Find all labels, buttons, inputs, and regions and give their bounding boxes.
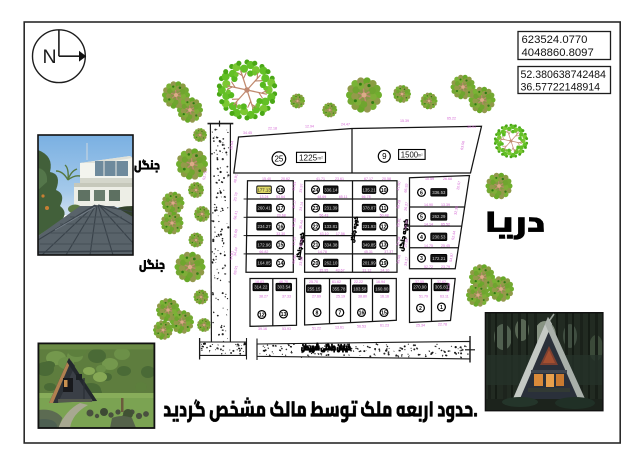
svg-text:56.53: 56.53 xyxy=(357,325,366,329)
svg-text:18.83: 18.83 xyxy=(255,280,264,284)
svg-text:m²: m² xyxy=(418,153,423,158)
svg-text:23.61: 23.61 xyxy=(335,177,344,181)
svg-text:13.24: 13.24 xyxy=(260,195,269,199)
svg-text:37.37: 37.37 xyxy=(384,250,393,254)
svg-text:37.62: 37.62 xyxy=(437,280,446,284)
svg-text:17: 17 xyxy=(278,206,284,212)
svg-text:67.17: 67.17 xyxy=(364,177,373,181)
svg-text:20.62: 20.62 xyxy=(281,177,290,181)
svg-text:65.52: 65.52 xyxy=(441,222,450,226)
svg-text:12.94: 12.94 xyxy=(305,124,314,128)
svg-text:m²: m² xyxy=(318,156,324,161)
svg-text:4: 4 xyxy=(420,235,423,241)
svg-text:53.64: 53.64 xyxy=(276,195,285,199)
svg-text:65.22: 65.22 xyxy=(447,117,456,121)
svg-text:255.15: 255.15 xyxy=(307,286,321,291)
svg-text:10.59: 10.59 xyxy=(425,177,434,181)
svg-text:14.90: 14.90 xyxy=(424,203,433,207)
svg-text:11: 11 xyxy=(381,206,387,212)
svg-text:37.33: 37.33 xyxy=(282,295,291,299)
svg-text:23.79: 23.79 xyxy=(441,265,450,269)
svg-text:33.30: 33.30 xyxy=(276,232,285,236)
svg-text:135.21: 135.21 xyxy=(363,187,377,192)
svg-text:334.38: 334.38 xyxy=(324,242,338,247)
svg-text:8: 8 xyxy=(316,310,319,316)
svg-text:201.99: 201.99 xyxy=(363,261,377,266)
svg-text:262.10: 262.10 xyxy=(324,261,338,266)
svg-text:20.68: 20.68 xyxy=(277,214,286,218)
svg-text:623524.0770: 623524.0770 xyxy=(522,34,588,46)
svg-text:164.85: 164.85 xyxy=(258,261,272,266)
svg-text:12: 12 xyxy=(381,224,387,230)
svg-text:9: 9 xyxy=(382,152,387,161)
svg-text:378.87: 378.87 xyxy=(363,206,377,211)
svg-text:25.34: 25.34 xyxy=(416,324,425,328)
svg-text:56.43: 56.43 xyxy=(319,214,328,218)
svg-text:46.70: 46.70 xyxy=(279,280,288,284)
svg-text:65.11: 65.11 xyxy=(339,195,348,199)
svg-text:51.22: 51.22 xyxy=(312,327,321,331)
svg-text:221.93: 221.93 xyxy=(363,224,377,229)
svg-text:14.14: 14.14 xyxy=(424,222,433,226)
svg-text:22: 22 xyxy=(313,224,319,230)
svg-text:23: 23 xyxy=(313,206,319,212)
svg-text:7: 7 xyxy=(338,310,341,316)
svg-text:5: 5 xyxy=(420,215,423,221)
svg-text:25.45: 25.45 xyxy=(441,244,450,248)
svg-text:15: 15 xyxy=(278,243,284,249)
svg-text:183.58: 183.58 xyxy=(353,286,367,291)
svg-text:2: 2 xyxy=(419,306,422,312)
svg-text:270.90: 270.90 xyxy=(413,285,427,290)
svg-text:45.31: 45.31 xyxy=(364,250,373,254)
svg-text:27.69: 27.69 xyxy=(312,295,321,299)
svg-text:39.91: 39.91 xyxy=(467,125,476,129)
svg-text:336.14: 336.14 xyxy=(324,187,338,192)
svg-text:262.29: 262.29 xyxy=(432,214,446,219)
svg-text:14: 14 xyxy=(278,261,284,267)
svg-text:172.21: 172.21 xyxy=(432,256,446,261)
svg-text:12: 12 xyxy=(259,312,265,318)
svg-text:43.67: 43.67 xyxy=(336,268,345,272)
svg-text:35.95: 35.95 xyxy=(319,268,328,272)
svg-text:133.81: 133.81 xyxy=(324,224,338,229)
svg-text:15: 15 xyxy=(381,310,387,316)
svg-text:16: 16 xyxy=(278,224,284,230)
svg-text:24.47: 24.47 xyxy=(341,122,350,126)
svg-text:61.23: 61.23 xyxy=(380,324,389,328)
svg-text:10: 10 xyxy=(381,188,387,194)
svg-text:63.11: 63.11 xyxy=(440,295,449,299)
svg-text:19: 19 xyxy=(381,261,387,267)
svg-text:14.75: 14.75 xyxy=(424,244,433,248)
svg-text:52.72: 52.72 xyxy=(424,265,433,269)
svg-text:234.27: 234.27 xyxy=(258,224,272,229)
svg-text:16.16: 16.16 xyxy=(380,295,389,299)
svg-text:38.27: 38.27 xyxy=(259,295,268,299)
svg-text:13: 13 xyxy=(281,312,287,318)
svg-text:25: 25 xyxy=(274,155,283,164)
svg-text:66.82: 66.82 xyxy=(259,250,268,254)
svg-text:66.78: 66.78 xyxy=(362,195,371,199)
svg-text:1500: 1500 xyxy=(401,151,419,160)
svg-text:230.53: 230.53 xyxy=(432,235,446,240)
svg-text:3: 3 xyxy=(420,256,423,262)
svg-text:36.57722148914: 36.57722148914 xyxy=(521,81,601,93)
svg-text:231.39: 231.39 xyxy=(324,206,338,211)
svg-text:31.12: 31.12 xyxy=(362,268,371,272)
svg-text:6: 6 xyxy=(420,190,423,196)
svg-text:22.78: 22.78 xyxy=(438,323,447,327)
svg-text:18: 18 xyxy=(278,188,284,194)
svg-text:50.48: 50.48 xyxy=(380,214,389,218)
svg-text:13: 13 xyxy=(381,243,387,249)
svg-text:N: N xyxy=(42,46,56,68)
svg-text:26.68: 26.68 xyxy=(443,177,452,181)
svg-text:172.96: 172.96 xyxy=(258,242,272,247)
svg-text:25.70: 25.70 xyxy=(309,280,318,284)
svg-text:41.71: 41.71 xyxy=(316,177,325,181)
svg-text:22.22: 22.22 xyxy=(354,280,363,284)
svg-text:160.80: 160.80 xyxy=(375,286,389,291)
svg-text:4048860.8097: 4048860.8097 xyxy=(522,47,594,59)
svg-text:15.39: 15.39 xyxy=(400,119,409,123)
svg-text:22.18: 22.18 xyxy=(268,126,277,130)
svg-text:14.78: 14.78 xyxy=(318,250,327,254)
svg-text:13.39: 13.39 xyxy=(441,203,450,207)
svg-text:39.16: 39.16 xyxy=(258,327,267,331)
svg-text:1225: 1225 xyxy=(299,153,318,162)
svg-text:24.10: 24.10 xyxy=(380,268,389,272)
svg-text:15.40: 15.40 xyxy=(262,177,271,181)
svg-text:53.93: 53.93 xyxy=(282,327,291,331)
svg-text:21: 21 xyxy=(313,243,319,249)
svg-text:25.19: 25.19 xyxy=(336,295,345,299)
svg-text:52.380638742484: 52.380638742484 xyxy=(521,69,607,81)
svg-text:355.78: 355.78 xyxy=(332,286,346,291)
svg-text:20.58: 20.58 xyxy=(382,177,391,181)
svg-text:20: 20 xyxy=(313,261,319,267)
svg-text:43.10: 43.10 xyxy=(320,232,329,236)
svg-text:260.41: 260.41 xyxy=(258,206,272,211)
svg-text:38.80: 38.80 xyxy=(358,295,367,299)
svg-text:16.94: 16.94 xyxy=(376,280,385,284)
svg-text:24: 24 xyxy=(313,188,319,194)
svg-text:61.62: 61.62 xyxy=(332,280,341,284)
svg-text:349.85: 349.85 xyxy=(363,242,377,247)
svg-text:336.53: 336.53 xyxy=(432,190,446,195)
svg-text:1: 1 xyxy=(440,305,443,311)
svg-text:303.54: 303.54 xyxy=(277,285,291,290)
svg-text:13.61: 13.61 xyxy=(335,326,344,330)
svg-text:34.45: 34.45 xyxy=(243,131,252,135)
svg-text:51.79: 51.79 xyxy=(419,295,428,299)
svg-text:177.13: 177.13 xyxy=(258,187,272,192)
svg-text:314.22: 314.22 xyxy=(254,285,268,290)
svg-text:48.69: 48.69 xyxy=(317,195,326,199)
svg-text:17.56: 17.56 xyxy=(336,232,345,236)
svg-text:37.55: 37.55 xyxy=(415,280,424,284)
svg-text:16: 16 xyxy=(359,310,365,316)
